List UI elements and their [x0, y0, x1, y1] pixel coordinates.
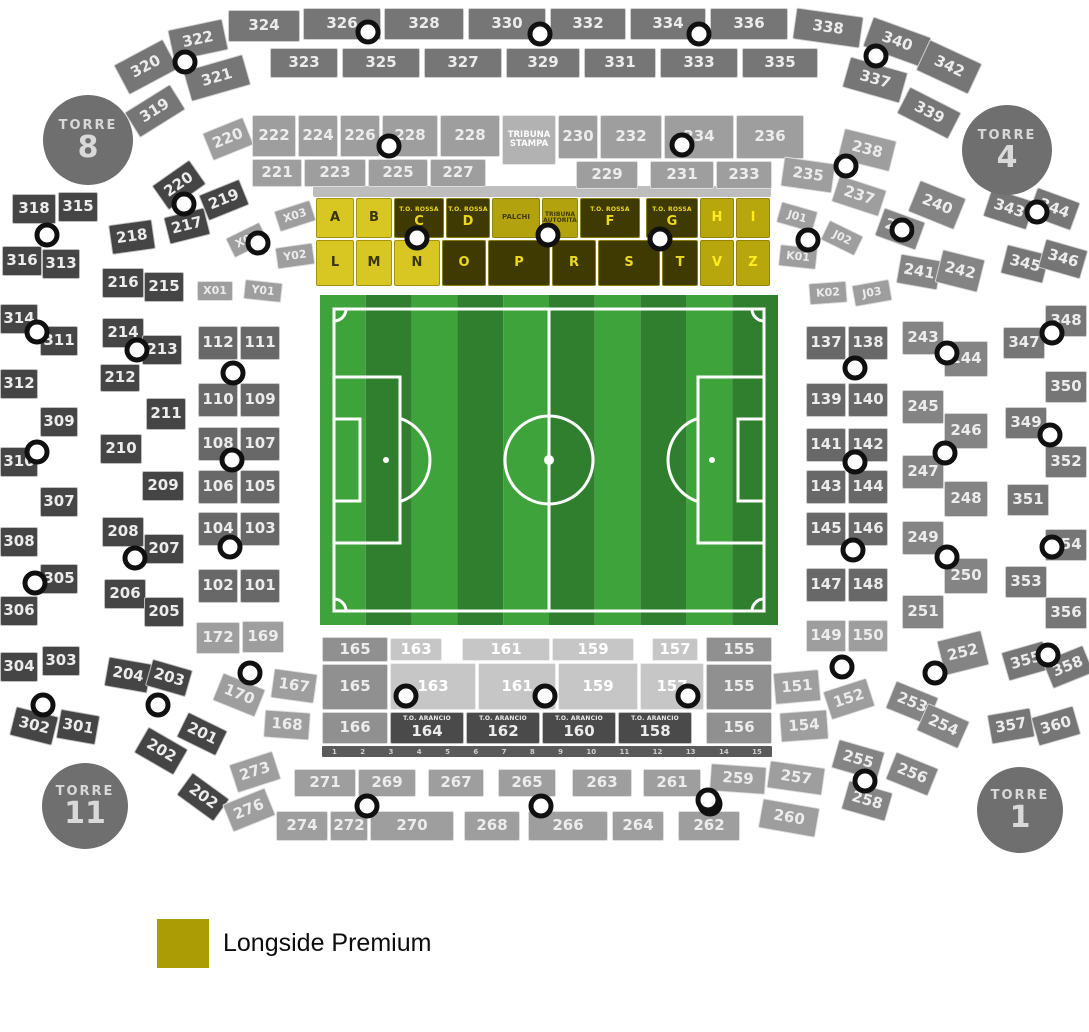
section-254[interactable]: 254 [916, 703, 970, 749]
section-102[interactable]: 102 [198, 569, 238, 603]
section-236[interactable]: 236 [736, 115, 804, 159]
section-label: 266 [552, 818, 583, 834]
section-label: 249 [907, 530, 938, 546]
section-x01[interactable]: X01 [197, 281, 233, 301]
row-number: 8 [530, 748, 535, 756]
section-v[interactable]: V [700, 240, 734, 286]
section-242[interactable]: 242 [935, 249, 986, 293]
section-167[interactable]: 167 [270, 668, 318, 704]
section-label: O [458, 256, 469, 270]
gate-marker-icon [246, 231, 271, 256]
row-number: 10 [586, 748, 596, 756]
section-label: 209 [147, 478, 178, 494]
section-label: 210 [105, 441, 136, 457]
tower-number: 8 [78, 133, 99, 163]
section-label: 329 [527, 55, 558, 71]
section-324[interactable]: 324 [228, 10, 300, 42]
section-label: 172 [202, 630, 233, 646]
gate-marker-icon [923, 661, 948, 686]
section-245[interactable]: 245 [902, 390, 944, 424]
section-label: 155 [723, 679, 754, 695]
section-211[interactable]: 211 [146, 398, 186, 430]
section-label: 325 [365, 55, 396, 71]
section-label: 163 [400, 642, 431, 658]
section-label: 212 [104, 370, 135, 386]
section-label: J03 [861, 286, 882, 301]
section-221[interactable]: 221 [252, 159, 302, 187]
section-222[interactable]: 222 [252, 115, 296, 157]
section-a[interactable]: A [316, 198, 354, 238]
section-251[interactable]: 251 [902, 595, 944, 629]
section-label: R [569, 256, 579, 270]
section-165[interactable]: 165 [322, 664, 388, 710]
section-label: 316 [6, 253, 37, 269]
section-162[interactable]: T.O. ARANCIO162 [466, 712, 540, 744]
section-140[interactable]: 140 [848, 383, 888, 417]
section-label: 145 [810, 521, 841, 537]
gate-marker-icon [23, 571, 48, 596]
section-257[interactable]: 257 [766, 760, 825, 796]
section-331[interactable]: 331 [584, 48, 656, 78]
section-label: 264 [622, 818, 653, 834]
section-212[interactable]: 212 [100, 364, 140, 392]
section-323[interactable]: 323 [270, 48, 338, 78]
section-label: 202 [144, 736, 179, 765]
section-308[interactable]: 308 [0, 527, 38, 557]
section-313[interactable]: 313 [42, 249, 80, 279]
section-label: 333 [683, 55, 714, 71]
section-label: D [463, 215, 474, 229]
section-o[interactable]: O [442, 240, 486, 286]
section-label: 328 [408, 16, 439, 32]
section-226[interactable]: 226 [340, 115, 380, 157]
section-163[interactable]: 163 [390, 638, 442, 661]
section-327[interactable]: 327 [424, 48, 502, 78]
legend: Longside Premium [157, 919, 431, 968]
section-202[interactable]: 202 [176, 772, 230, 822]
section-271[interactable]: 271 [294, 769, 356, 797]
pitch [320, 295, 778, 625]
section-111[interactable]: 111 [240, 326, 280, 360]
section-265[interactable]: 265 [498, 769, 556, 797]
section-m[interactable]: M [356, 240, 392, 286]
section-210[interactable]: 210 [100, 434, 142, 464]
section-312[interactable]: 312 [0, 369, 38, 399]
gate-marker-icon [796, 228, 821, 253]
section-159[interactable]: 159 [558, 663, 638, 710]
section-106[interactable]: 106 [198, 470, 238, 504]
section-110[interactable]: 110 [198, 383, 238, 417]
section-101[interactable]: 101 [240, 569, 280, 603]
row-number: 15 [752, 748, 762, 756]
section-241[interactable]: 241 [896, 254, 943, 291]
row-number: 11 [620, 748, 630, 756]
section-306[interactable]: 306 [0, 596, 38, 626]
section-label: 276 [232, 797, 267, 823]
section-label: 216 [107, 275, 138, 291]
section-267[interactable]: 267 [428, 769, 484, 797]
section-152[interactable]: 152 [822, 678, 875, 721]
section-231[interactable]: 231 [650, 161, 714, 189]
section-155[interactable]: 155 [706, 637, 772, 662]
section-label: 323 [288, 55, 319, 71]
section-d[interactable]: T.O. ROSSAD [446, 198, 490, 238]
gate-marker-icon [221, 361, 246, 386]
gate-marker-icon [394, 684, 419, 709]
section-164[interactable]: T.O. ARANCIO164 [390, 712, 464, 744]
section-label: 349 [1010, 415, 1041, 431]
section-label: 206 [109, 586, 140, 602]
gate-marker-icon [834, 154, 859, 179]
section-label: B [369, 211, 379, 225]
section-204[interactable]: 204 [104, 656, 153, 693]
section-356[interactable]: 356 [1045, 597, 1087, 629]
gate-marker-icon [125, 338, 150, 363]
section-229[interactable]: 229 [576, 161, 638, 189]
section-207[interactable]: 207 [144, 534, 184, 564]
section-label: 217 [170, 215, 204, 238]
section-label: 221 [261, 165, 292, 181]
section-144[interactable]: 144 [848, 470, 888, 504]
section-label: 147 [810, 577, 841, 593]
section-label: 201 [184, 720, 219, 748]
section-label: 261 [656, 775, 687, 791]
section-150[interactable]: 150 [848, 620, 888, 652]
section-x03[interactable]: X03 [274, 200, 317, 233]
section-325[interactable]: 325 [342, 48, 420, 78]
section-label: 109 [244, 392, 275, 408]
tower-number: 11 [64, 799, 106, 829]
section-168[interactable]: 168 [263, 709, 311, 740]
gate-marker-icon [1040, 535, 1065, 560]
section-256[interactable]: 256 [885, 751, 939, 796]
section-label: 342 [931, 53, 966, 81]
section-215[interactable]: 215 [144, 272, 184, 302]
section-141[interactable]: 141 [806, 428, 846, 462]
section-205[interactable]: 205 [144, 597, 184, 627]
section-225[interactable]: 225 [368, 159, 428, 187]
section-label: L [331, 256, 339, 270]
section-label: A [330, 211, 340, 225]
section-r[interactable]: R [552, 240, 596, 286]
row-number: 13 [686, 748, 696, 756]
section-105[interactable]: 105 [240, 470, 280, 504]
section-label: 265 [511, 775, 542, 791]
section-label: 339 [911, 99, 946, 127]
gate-marker-icon [648, 227, 673, 252]
penalty-spot-right [709, 457, 715, 463]
section-148[interactable]: 148 [848, 568, 888, 602]
section-309[interactable]: 309 [40, 407, 78, 437]
section-137[interactable]: 137 [806, 326, 846, 360]
section-227[interactable]: 227 [430, 159, 486, 187]
section-112[interactable]: 112 [198, 326, 238, 360]
section-label: M [368, 256, 381, 270]
section-151[interactable]: 151 [773, 669, 822, 705]
section-sublabel: T.O. ROSSA [399, 207, 439, 213]
section-label: 272 [333, 818, 364, 834]
section-label: 157 [659, 642, 690, 658]
section-label: 337 [858, 68, 892, 92]
section-248[interactable]: 248 [944, 481, 988, 517]
section-label: 233 [728, 167, 759, 183]
section-label: 245 [907, 399, 938, 415]
section-label: T [676, 256, 685, 270]
section-label: 319 [138, 96, 173, 126]
section-335[interactable]: 335 [742, 48, 818, 78]
section-303[interactable]: 303 [42, 646, 80, 676]
section-259[interactable]: 259 [709, 763, 767, 795]
section-155[interactable]: 155 [706, 664, 772, 710]
section-161[interactable]: 161 [462, 638, 550, 661]
section-339[interactable]: 339 [896, 86, 961, 139]
section-label: 273 [238, 760, 273, 785]
section-label: 159 [577, 642, 608, 658]
section-357[interactable]: 357 [987, 707, 1036, 744]
section-316[interactable]: 316 [2, 246, 42, 276]
section-149[interactable]: 149 [806, 620, 846, 652]
gate-marker-icon [146, 693, 171, 718]
row-number: 2 [360, 748, 365, 756]
section-label: 222 [258, 128, 289, 144]
section-353[interactable]: 353 [1005, 566, 1047, 598]
section-label: 346 [1046, 247, 1080, 271]
section-label: 139 [810, 392, 841, 408]
gate-marker-icon [676, 684, 701, 709]
legend-label: Longside Premium [223, 929, 431, 958]
section-label: S [624, 256, 633, 270]
section-label: 232 [615, 129, 646, 145]
section-label: 224 [302, 128, 333, 144]
section-f[interactable]: T.O. ROSSAF [580, 198, 640, 238]
row-number: 4 [417, 748, 422, 756]
section-h[interactable]: H [700, 198, 734, 238]
section-label: 268 [476, 818, 507, 834]
section-i[interactable]: I [736, 198, 770, 238]
section-160[interactable]: T.O. ARANCIO160 [542, 712, 616, 744]
section-261[interactable]: 261 [643, 769, 701, 797]
section-329[interactable]: 329 [506, 48, 580, 78]
section-230[interactable]: 230 [558, 115, 598, 159]
section-109[interactable]: 109 [240, 383, 280, 417]
section-351[interactable]: 351 [1007, 484, 1049, 516]
section-342[interactable]: 342 [916, 39, 983, 94]
section-p[interactable]: P [488, 240, 550, 286]
section-y01[interactable]: Y01 [243, 279, 283, 303]
row-number: 9 [558, 748, 563, 756]
section-338[interactable]: 338 [792, 7, 864, 48]
section-label: 271 [309, 775, 340, 791]
section-label: 312 [3, 376, 34, 392]
section-273[interactable]: 273 [228, 751, 281, 794]
gate-marker-icon [687, 22, 712, 47]
gate-marker-icon [25, 320, 50, 345]
section-166[interactable]: 166 [322, 712, 388, 744]
section-139[interactable]: 139 [806, 383, 846, 417]
gate-marker-icon [533, 684, 558, 709]
section-label: 313 [45, 256, 76, 272]
section-y02[interactable]: Y02 [275, 242, 316, 269]
section-154[interactable]: 154 [779, 709, 829, 742]
section-label: 247 [907, 464, 938, 480]
section-332[interactable]: 332 [550, 8, 626, 40]
section-350[interactable]: 350 [1045, 371, 1087, 403]
section-158[interactable]: T.O. ARANCIO158 [618, 712, 692, 744]
section-label: 267 [440, 775, 471, 791]
section-237[interactable]: 237 [831, 175, 887, 217]
gate-marker-icon [935, 545, 960, 570]
tower-1: TORRE1 [977, 767, 1063, 853]
section-360[interactable]: 360 [1031, 706, 1082, 747]
section-label: TRIBUNA STAMPA [503, 131, 555, 149]
section-j02[interactable]: J02 [820, 220, 864, 256]
section-label: 318 [18, 201, 49, 217]
section-157[interactable]: 157 [652, 638, 698, 661]
section-b[interactable]: B [356, 198, 392, 238]
section-label: 167 [277, 676, 310, 696]
section-label: 242 [943, 260, 977, 283]
section-palchi[interactable]: PALCHI [492, 198, 540, 238]
section-label: 211 [150, 406, 181, 422]
section-203[interactable]: 203 [145, 659, 193, 697]
section-107[interactable]: 107 [240, 427, 280, 461]
section-156[interactable]: 156 [706, 712, 772, 744]
section-218[interactable]: 218 [108, 219, 156, 255]
center-spot [544, 455, 554, 465]
gate-marker-icon [1036, 643, 1061, 668]
section-276[interactable]: 276 [222, 787, 276, 832]
section-label: 303 [45, 653, 76, 669]
section-235[interactable]: 235 [780, 157, 836, 194]
section-label: 229 [591, 167, 622, 183]
section-228[interactable]: 228 [440, 115, 500, 157]
section-232[interactable]: 232 [600, 115, 662, 159]
section-label: 137 [810, 335, 841, 351]
section-j03[interactable]: J03 [851, 279, 892, 307]
section-label: 257 [779, 768, 812, 788]
gate-marker-icon [841, 538, 866, 563]
gate-marker-icon [356, 20, 381, 45]
section-label: 144 [852, 479, 883, 495]
section-268[interactable]: 268 [464, 811, 520, 841]
row-number: 3 [389, 748, 394, 756]
section-216[interactable]: 216 [102, 268, 144, 298]
gate-marker-icon [933, 441, 958, 466]
section-336[interactable]: 336 [710, 8, 788, 40]
section-172[interactable]: 172 [196, 622, 240, 654]
section-233[interactable]: 233 [716, 161, 772, 189]
section-220[interactable]: 220 [202, 117, 254, 161]
section-l[interactable]: L [316, 240, 354, 286]
section-147[interactable]: 147 [806, 568, 846, 602]
section-264[interactable]: 264 [612, 811, 664, 841]
section-label: 263 [586, 775, 617, 791]
section-label: 218 [115, 227, 148, 247]
section-label: 240 [920, 192, 955, 218]
section-label: Z [748, 256, 757, 270]
section-label: 102 [202, 578, 233, 594]
gate-marker-icon [830, 655, 855, 680]
section-label: 203 [152, 666, 186, 690]
section-label: 320 [128, 53, 163, 82]
section-label: 236 [754, 129, 785, 145]
section-352[interactable]: 352 [1045, 446, 1087, 478]
section-sublabel: T.O. ROSSA [448, 207, 488, 213]
section-label: 163 [417, 679, 448, 695]
gate-marker-icon [355, 794, 380, 819]
section-label: G [667, 215, 678, 229]
section-label: 269 [371, 775, 402, 791]
section-label: 146 [852, 521, 883, 537]
section-263[interactable]: 263 [572, 769, 632, 797]
gate-marker-icon [35, 223, 60, 248]
section-145[interactable]: 145 [806, 512, 846, 546]
section-label: 148 [852, 577, 883, 593]
section-label: 241 [902, 262, 936, 283]
section-label: 205 [148, 604, 179, 620]
section-label: 231 [666, 167, 697, 183]
section-label: 347 [1008, 335, 1039, 351]
section-label: 164 [411, 724, 442, 740]
section-label: 215 [148, 279, 179, 295]
section-z[interactable]: Z [736, 240, 770, 286]
section-270[interactable]: 270 [370, 811, 454, 841]
section-333[interactable]: 333 [660, 48, 738, 78]
section-label: 309 [43, 414, 74, 430]
section-label: 161 [501, 679, 532, 695]
section-label: 103 [244, 521, 275, 537]
section-328[interactable]: 328 [384, 8, 464, 40]
section-label: 155 [723, 642, 754, 658]
section-tribuna-stampa[interactable]: TRIBUNA STAMPA [502, 115, 556, 165]
section-315[interactable]: 315 [58, 192, 98, 222]
section-label: 151 [781, 678, 814, 696]
section-k02[interactable]: K02 [808, 281, 847, 306]
section-103[interactable]: 103 [240, 512, 280, 546]
section-224[interactable]: 224 [298, 115, 338, 157]
section-206[interactable]: 206 [104, 579, 146, 609]
section-165[interactable]: 165 [322, 637, 388, 662]
section-159[interactable]: 159 [552, 638, 634, 661]
section-208[interactable]: 208 [102, 517, 144, 547]
gate-marker-icon [843, 356, 868, 381]
section-label: F [606, 215, 615, 229]
row-number: 14 [719, 748, 729, 756]
section-label: 327 [447, 55, 478, 71]
section-label: 260 [772, 808, 806, 829]
section-301[interactable]: 301 [56, 709, 101, 745]
gate-marker-icon [123, 546, 148, 571]
section-318[interactable]: 318 [12, 194, 56, 224]
section-260[interactable]: 260 [758, 798, 820, 838]
section-label: 101 [244, 578, 275, 594]
section-143[interactable]: 143 [806, 470, 846, 504]
section-304[interactable]: 304 [0, 652, 38, 682]
section-169[interactable]: 169 [242, 621, 284, 653]
section-label: 106 [202, 479, 233, 495]
section-label: 262 [693, 818, 724, 834]
section-label: 170 [222, 682, 257, 708]
section-307[interactable]: 307 [40, 487, 78, 517]
section-label: X01 [203, 285, 227, 297]
section-label: 343 [992, 197, 1027, 222]
section-274[interactable]: 274 [276, 811, 328, 841]
section-label: 202 [186, 781, 221, 812]
section-209[interactable]: 209 [142, 471, 184, 501]
section-label: J01 [786, 209, 808, 225]
section-223[interactable]: 223 [304, 159, 366, 187]
penalty-spot-left [383, 457, 389, 463]
